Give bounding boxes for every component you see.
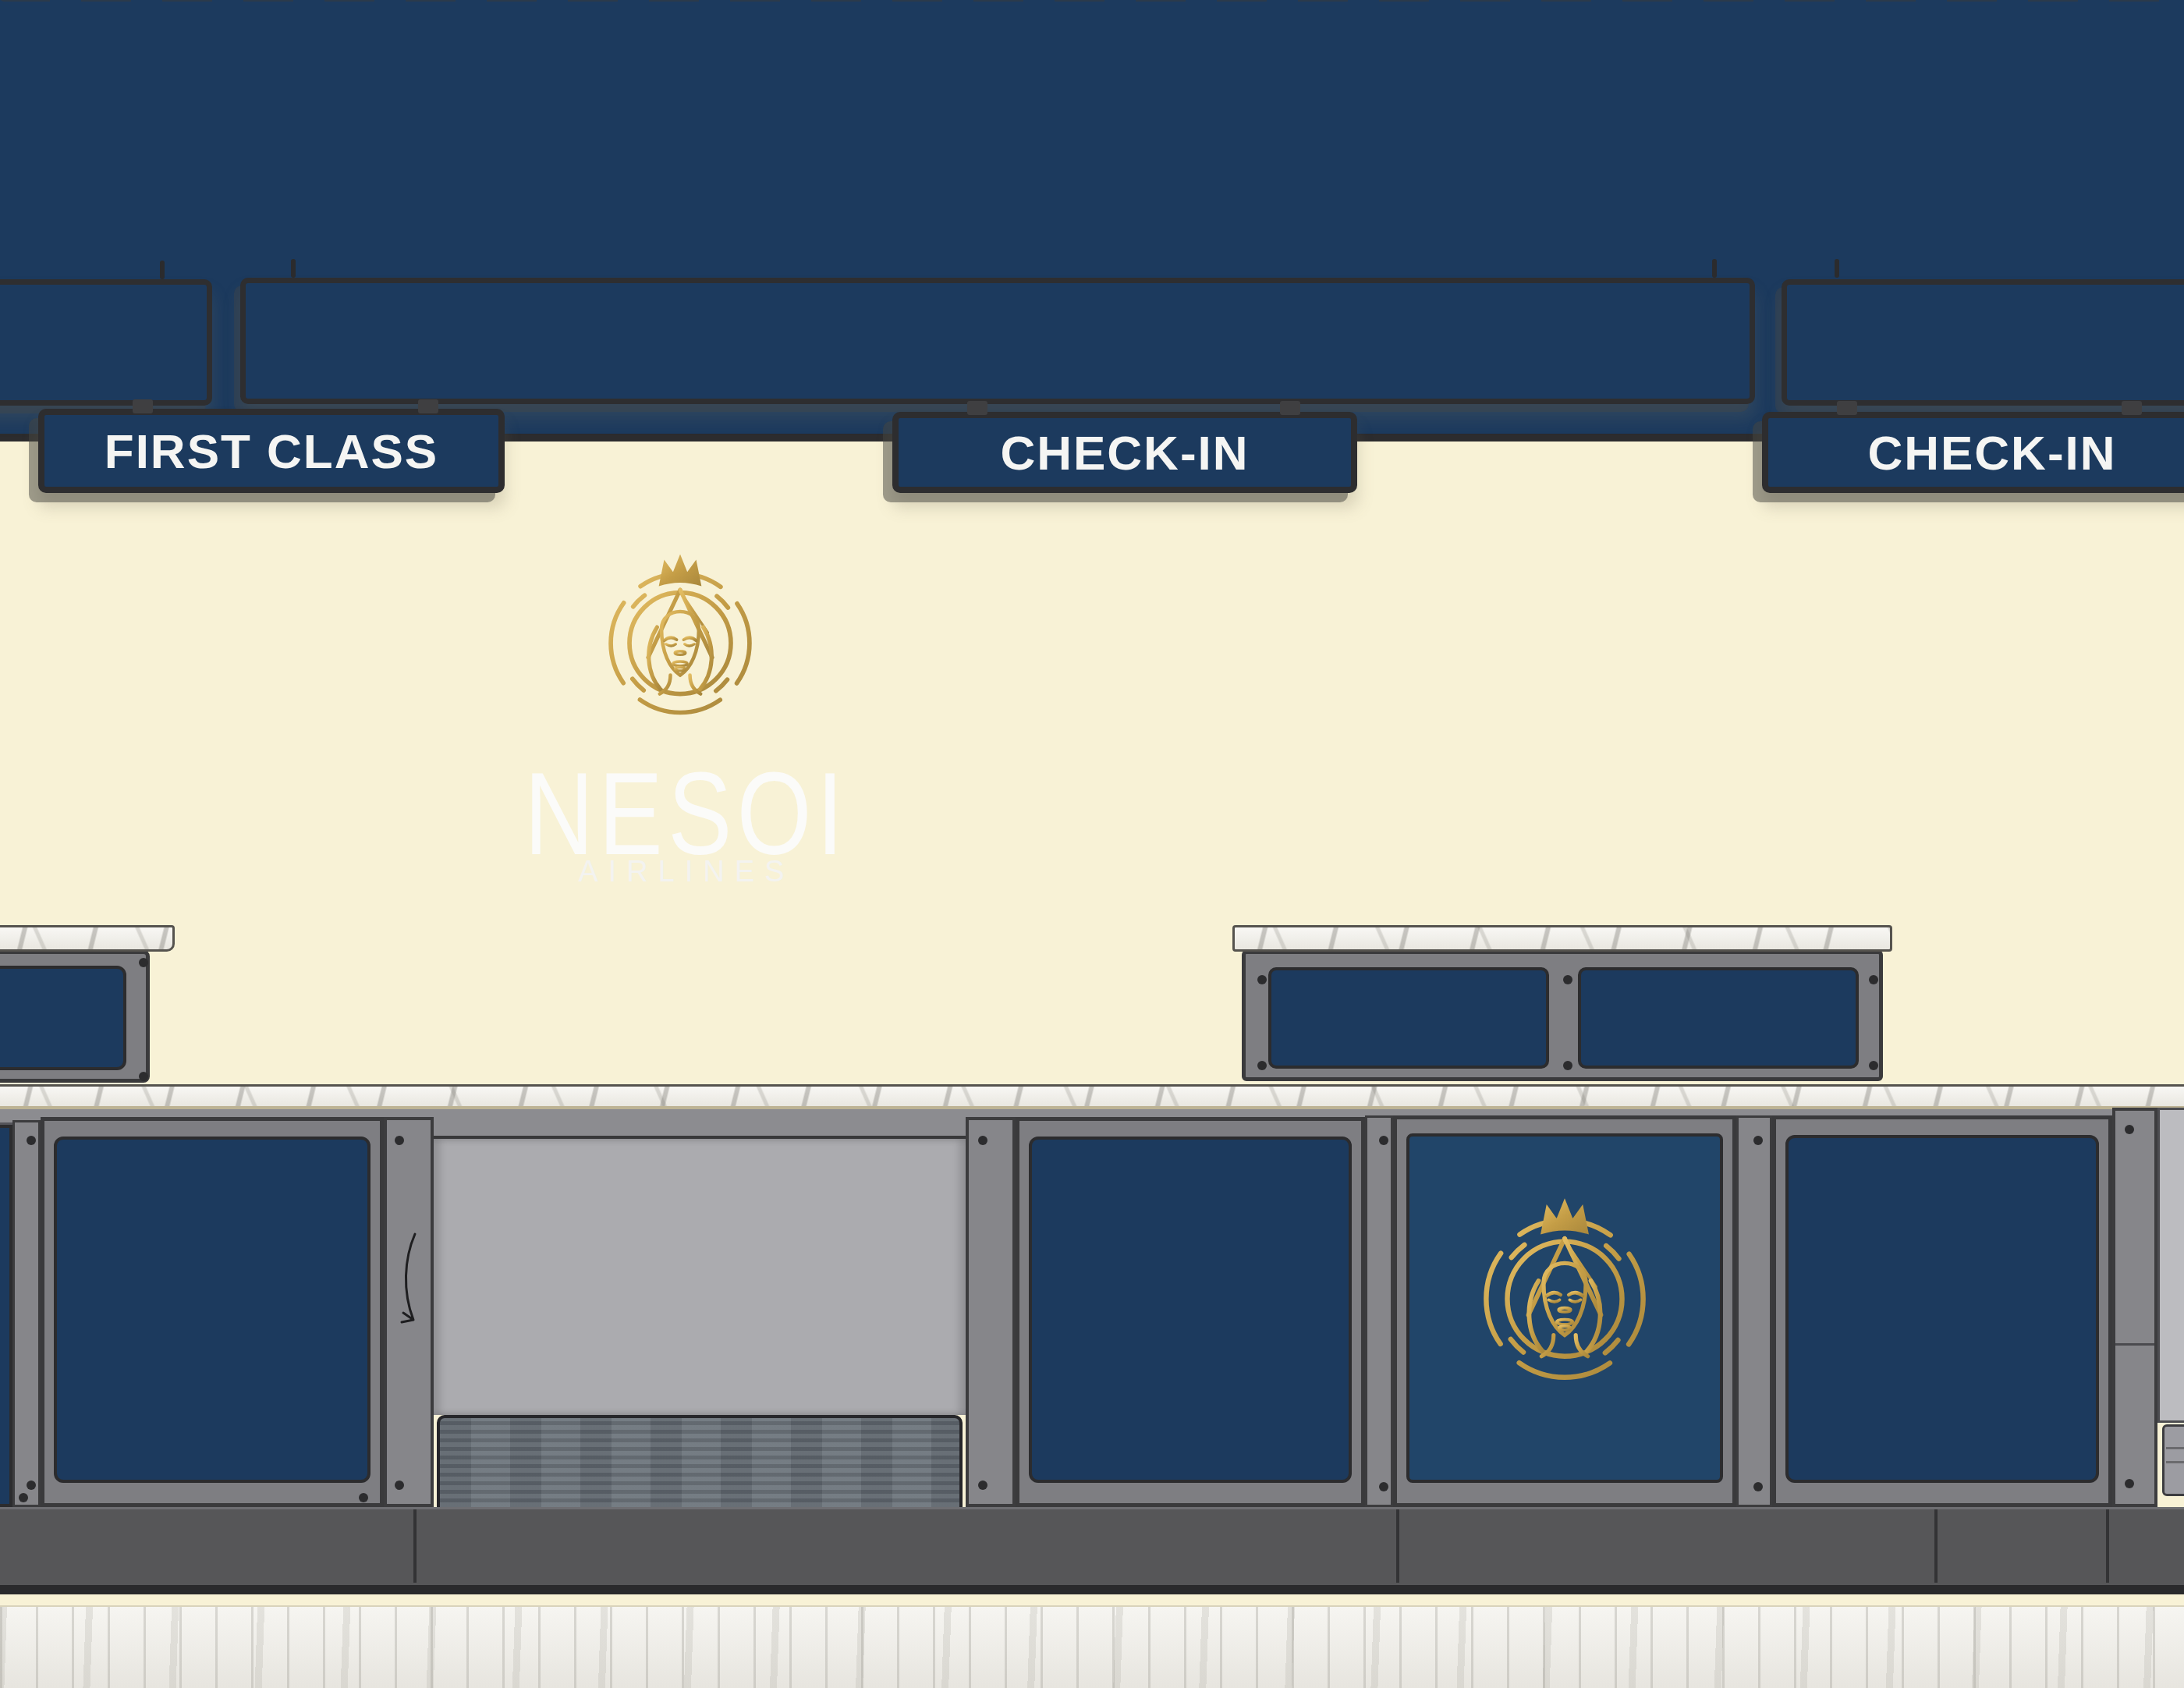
desk-post [1736, 1115, 1772, 1507]
screw-icon [395, 1481, 404, 1490]
ceiling-panel-right [1782, 279, 2184, 406]
checkin-desk-3-front-panel [1785, 1135, 2099, 1483]
checkin-desk-2[interactable] [1016, 1117, 1365, 1507]
hanger-pin-icon [160, 261, 165, 279]
screw-icon [1753, 1482, 1763, 1491]
desk-post [1365, 1115, 1393, 1507]
counter-marble-top [0, 1084, 2184, 1109]
checkin-desk-1[interactable] [41, 1117, 384, 1507]
bay-post-right [966, 1117, 1016, 1507]
back-counter-right-marble-top [1232, 925, 1892, 952]
screw-icon [1869, 1061, 1878, 1070]
pillar-seam [2115, 1343, 2154, 1346]
ceiling-panel-center [240, 278, 1755, 404]
back-counter-left-panel [0, 966, 126, 1070]
sign-check-in-center[interactable]: CHECK-IN [892, 412, 1357, 493]
screw-icon [2125, 1479, 2134, 1488]
brand-logo-desk [1393, 1115, 1736, 1507]
shutter-handle-icon[interactable] [392, 1229, 426, 1331]
screw-icon [1563, 975, 1572, 984]
base-seam [1934, 1509, 1938, 1583]
sign-check-in-right[interactable]: CHECK-IN [1762, 412, 2184, 493]
bay-lintel [434, 1117, 966, 1139]
checkin-desk-3[interactable] [1772, 1115, 2112, 1507]
hanger-pin-icon [291, 259, 296, 278]
crowned-queen-crest-icon [1464, 1194, 1665, 1395]
screw-icon [978, 1136, 987, 1145]
sign-hanger-tab [418, 399, 438, 413]
screw-icon [395, 1136, 404, 1145]
desk-edge-panel [0, 1125, 12, 1507]
screw-icon [139, 958, 148, 967]
back-counter-right-panel-1 [1268, 967, 1549, 1069]
sign-hanger-tab [1837, 401, 1857, 415]
counter-side-box [2162, 1424, 2184, 1496]
sign-hanger-tab [967, 401, 987, 415]
crowned-queen-crest-icon [591, 551, 769, 729]
sign-check-in-right-label: CHECK-IN [1867, 425, 2116, 481]
base-seam [2106, 1509, 2109, 1583]
base-seam [413, 1509, 417, 1583]
screw-icon [1869, 975, 1878, 984]
screw-icon [1563, 1061, 1572, 1070]
desk-post [12, 1120, 41, 1507]
sign-first-class-label: FIRST CLASS [105, 424, 438, 479]
sign-check-in-center-label: CHECK-IN [1000, 425, 1249, 481]
sign-hanger-tab [1280, 401, 1300, 415]
hanger-pin-icon [1712, 259, 1717, 278]
airline-subtitle: AIRLINES [374, 856, 998, 886]
counter-base [0, 1507, 2184, 1594]
terminal-scene: NESOI AIRLINES FIRST CLASS CHECK-IN CHEC… [0, 0, 2184, 1688]
bay-base [437, 1415, 963, 1510]
screw-icon [2125, 1125, 2134, 1134]
counter-end-pillar [2112, 1108, 2157, 1507]
roller-shutter[interactable] [434, 1139, 966, 1415]
screw-icon [1753, 1136, 1763, 1145]
back-counter-right-panel-2 [1578, 967, 1859, 1069]
sign-hanger-tab [2122, 401, 2142, 415]
screw-icon [1257, 975, 1267, 984]
back-counter-left-marble-top [0, 925, 175, 952]
hanger-pin-icon [1835, 259, 1839, 278]
screw-icon [978, 1481, 987, 1490]
screw-icon [1379, 1482, 1388, 1491]
sign-first-class[interactable]: FIRST CLASS [38, 409, 505, 493]
screw-icon [139, 1072, 148, 1081]
screw-icon [27, 1481, 36, 1490]
bay-post-left [384, 1117, 434, 1507]
checkin-desk-1-front-panel [54, 1137, 370, 1483]
screw-icon [1257, 1061, 1267, 1070]
sign-hanger-tab [133, 399, 153, 413]
checkin-desk-2-front-panel [1029, 1137, 1352, 1483]
marble-floor [0, 1605, 2184, 1688]
base-seam [1396, 1509, 1399, 1583]
screw-icon [1379, 1136, 1388, 1145]
screw-icon [359, 1493, 368, 1502]
ceiling-panel-left [0, 279, 212, 406]
screw-icon [27, 1136, 36, 1145]
counter-side-return [2157, 1108, 2184, 1423]
screw-icon [19, 1493, 28, 1502]
